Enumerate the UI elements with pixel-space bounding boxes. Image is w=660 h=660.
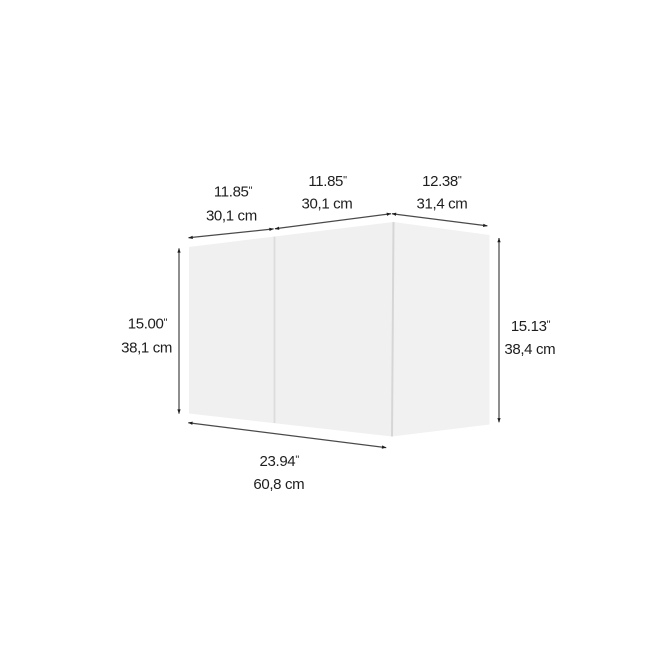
svg-text:31,4 cm: 31,4 cm: [417, 196, 468, 213]
svg-text:15.00": 15.00": [128, 316, 168, 333]
svg-text:11.85": 11.85": [308, 173, 347, 190]
svg-text:30,1 cm: 30,1 cm: [206, 207, 257, 224]
svg-text:30,1 cm: 30,1 cm: [302, 196, 353, 213]
svg-text:38,1 cm: 38,1 cm: [121, 340, 172, 357]
svg-text:38,4 cm: 38,4 cm: [504, 341, 555, 358]
svg-text:23.94": 23.94": [260, 453, 300, 470]
svg-text:60,8 cm: 60,8 cm: [253, 476, 304, 493]
svg-text:11.85": 11.85": [214, 184, 253, 201]
svg-text:12.38": 12.38": [422, 173, 462, 190]
svg-text:15.13": 15.13": [511, 318, 551, 335]
